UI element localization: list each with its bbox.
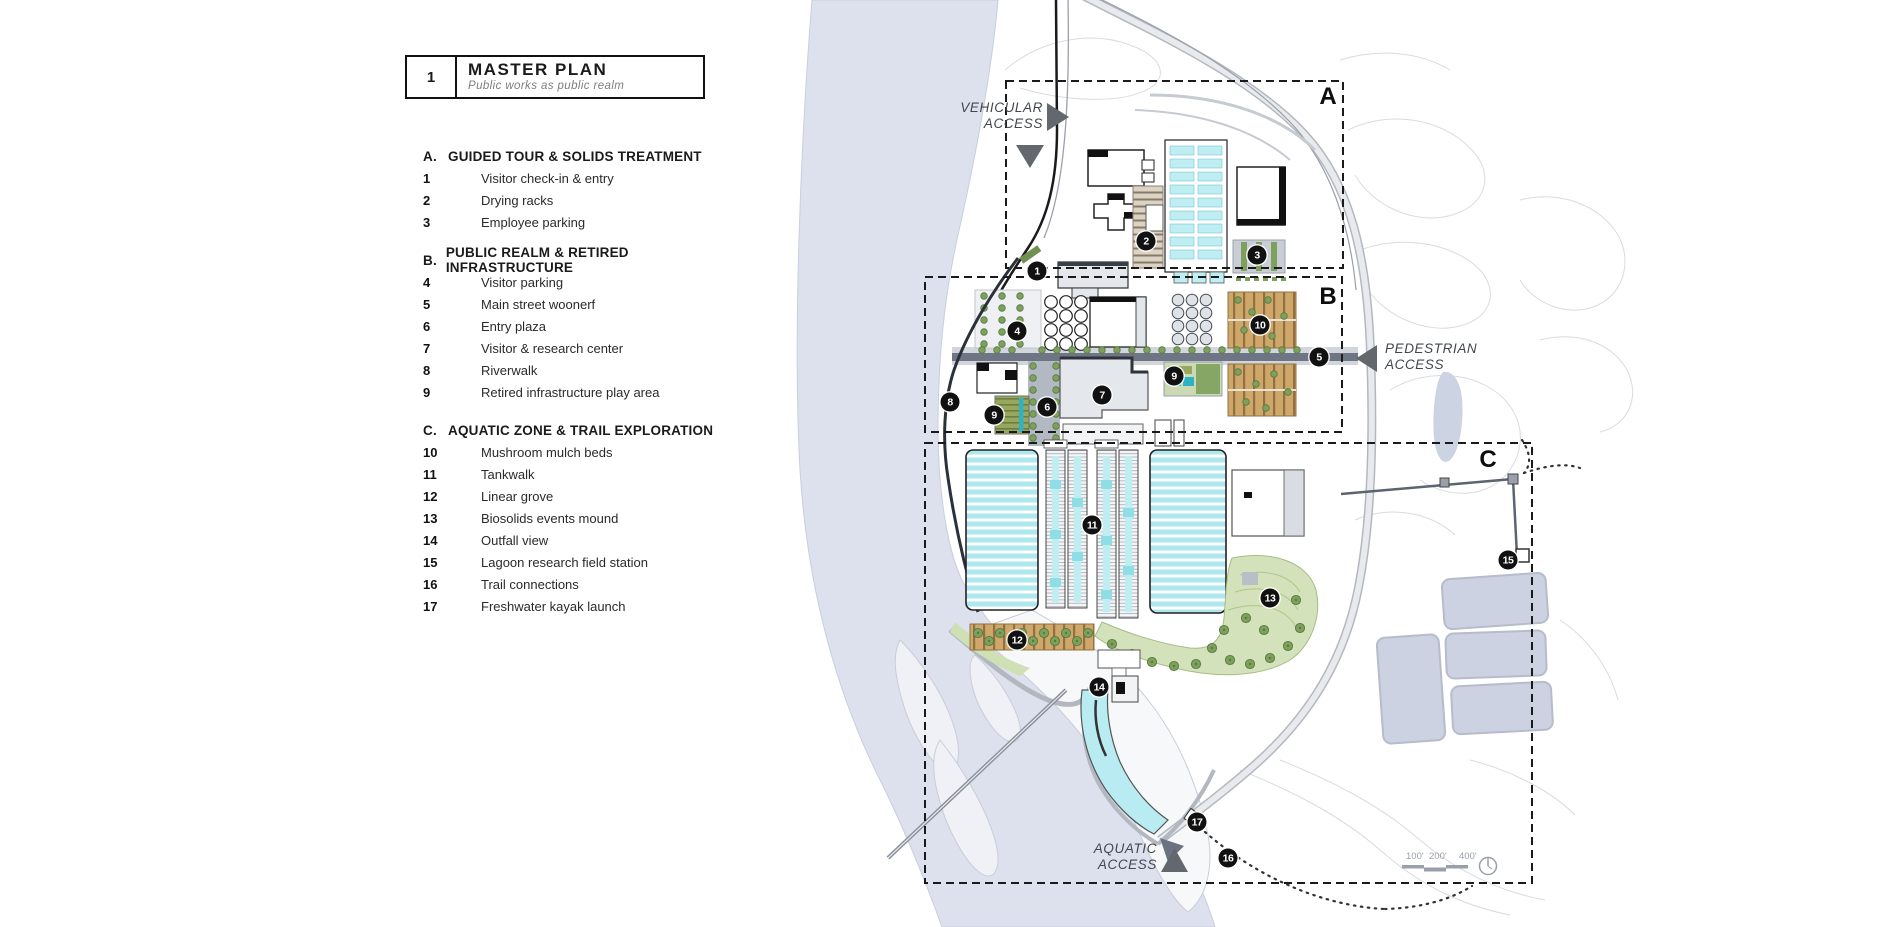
map-marker-9: 9	[985, 406, 1004, 425]
map-marker-2: 2	[1137, 232, 1156, 251]
legend-item-1: 1Visitor check-in & entry	[423, 167, 733, 189]
map-marker-12: 12	[1008, 631, 1027, 650]
map-marker-17: 17	[1188, 813, 1207, 832]
map-marker-8: 8	[941, 393, 960, 412]
map-marker-7: 7	[1093, 386, 1112, 405]
legend-item-5: 5Main street woonerf	[423, 293, 733, 315]
map-marker-14: 14	[1090, 678, 1109, 697]
zone-label-a: A	[1319, 83, 1336, 111]
page-title: MASTER PLAN	[468, 61, 624, 79]
site-plan-map	[0, 0, 1900, 927]
vehicular-access-arrow-down	[1016, 145, 1044, 168]
aquatic-access-label: AQUATIC ACCESS	[1094, 841, 1157, 873]
title-block: 1 MASTER PLAN Public works as public rea…	[405, 55, 705, 99]
digester-tanks	[1172, 294, 1212, 345]
lagoon-basin-west	[966, 450, 1038, 610]
map-marker-11: 11	[1083, 516, 1102, 535]
sheet-number: 1	[407, 57, 457, 97]
lagoon-basin-east	[1150, 450, 1226, 613]
map-marker-3: 3	[1248, 246, 1267, 265]
legend-item-15: 15Lagoon research field station	[423, 551, 733, 573]
legend-item-14: 14Outfall view	[423, 529, 733, 551]
woonerf-street	[952, 353, 1358, 361]
legend-section-b: B.PUBLIC REALM & RETIRED INFRASTRUCTURE4…	[423, 249, 733, 403]
map-marker-16: 16	[1219, 849, 1238, 868]
page-subtitle: Public works as public realm	[468, 80, 624, 92]
map-marker-13: 13	[1261, 589, 1280, 608]
legend-item-16: 16Trail connections	[423, 573, 733, 595]
legend-item-17: 17Freshwater kayak launch	[423, 595, 733, 617]
legend-item-12: 12Linear grove	[423, 485, 733, 507]
legend-item-3: 3Employee parking	[423, 211, 733, 233]
map-marker-4: 4	[1008, 322, 1027, 341]
legend-section-c: C.AQUATIC ZONE & TRAIL EXPLORATION10Mush…	[423, 419, 733, 617]
legend-section-header: A.GUIDED TOUR & SOLIDS TREATMENT	[423, 145, 733, 167]
legend-section-header: C.AQUATIC ZONE & TRAIL EXPLORATION	[423, 419, 733, 441]
map-marker-1: 1	[1028, 262, 1047, 281]
legend-item-9: 9Retired infrastructure play area	[423, 381, 733, 403]
zone-label-c: C	[1479, 446, 1496, 474]
map-marker-10: 10	[1251, 316, 1270, 335]
zone-b	[952, 272, 1358, 446]
map-marker-5: 5	[1310, 348, 1329, 367]
vehicular-access-label: VEHICULAR ACCESS	[960, 100, 1043, 132]
research-lagoons	[1376, 572, 1553, 744]
legend-section-header: B.PUBLIC REALM & RETIRED INFRASTRUCTURE	[423, 249, 733, 271]
zone-label-b: B	[1319, 283, 1336, 311]
pedestrian-access-label: PEDESTRIAN ACCESS	[1385, 341, 1477, 373]
legend: A.GUIDED TOUR & SOLIDS TREATMENT1Visitor…	[423, 145, 733, 633]
clarifier-tanks	[1045, 296, 1088, 351]
pond	[1433, 372, 1462, 462]
map-marker-9: 9	[1165, 367, 1184, 386]
legend-item-11: 11Tankwalk	[423, 463, 733, 485]
legend-section-a: A.GUIDED TOUR & SOLIDS TREATMENT1Visitor…	[423, 145, 733, 233]
legend-item-6: 6Entry plaza	[423, 315, 733, 337]
legend-item-8: 8Riverwalk	[423, 359, 733, 381]
master-plan-sheet: 1 MASTER PLAN Public works as public rea…	[0, 0, 1900, 927]
legend-item-13: 13Biosolids events mound	[423, 507, 733, 529]
legend-item-7: 7Visitor & research center	[423, 337, 733, 359]
map-marker-6: 6	[1038, 398, 1057, 417]
legend-item-2: 2Drying racks	[423, 189, 733, 211]
map-marker-15: 15	[1499, 551, 1518, 570]
legend-item-10: 10Mushroom mulch beds	[423, 441, 733, 463]
